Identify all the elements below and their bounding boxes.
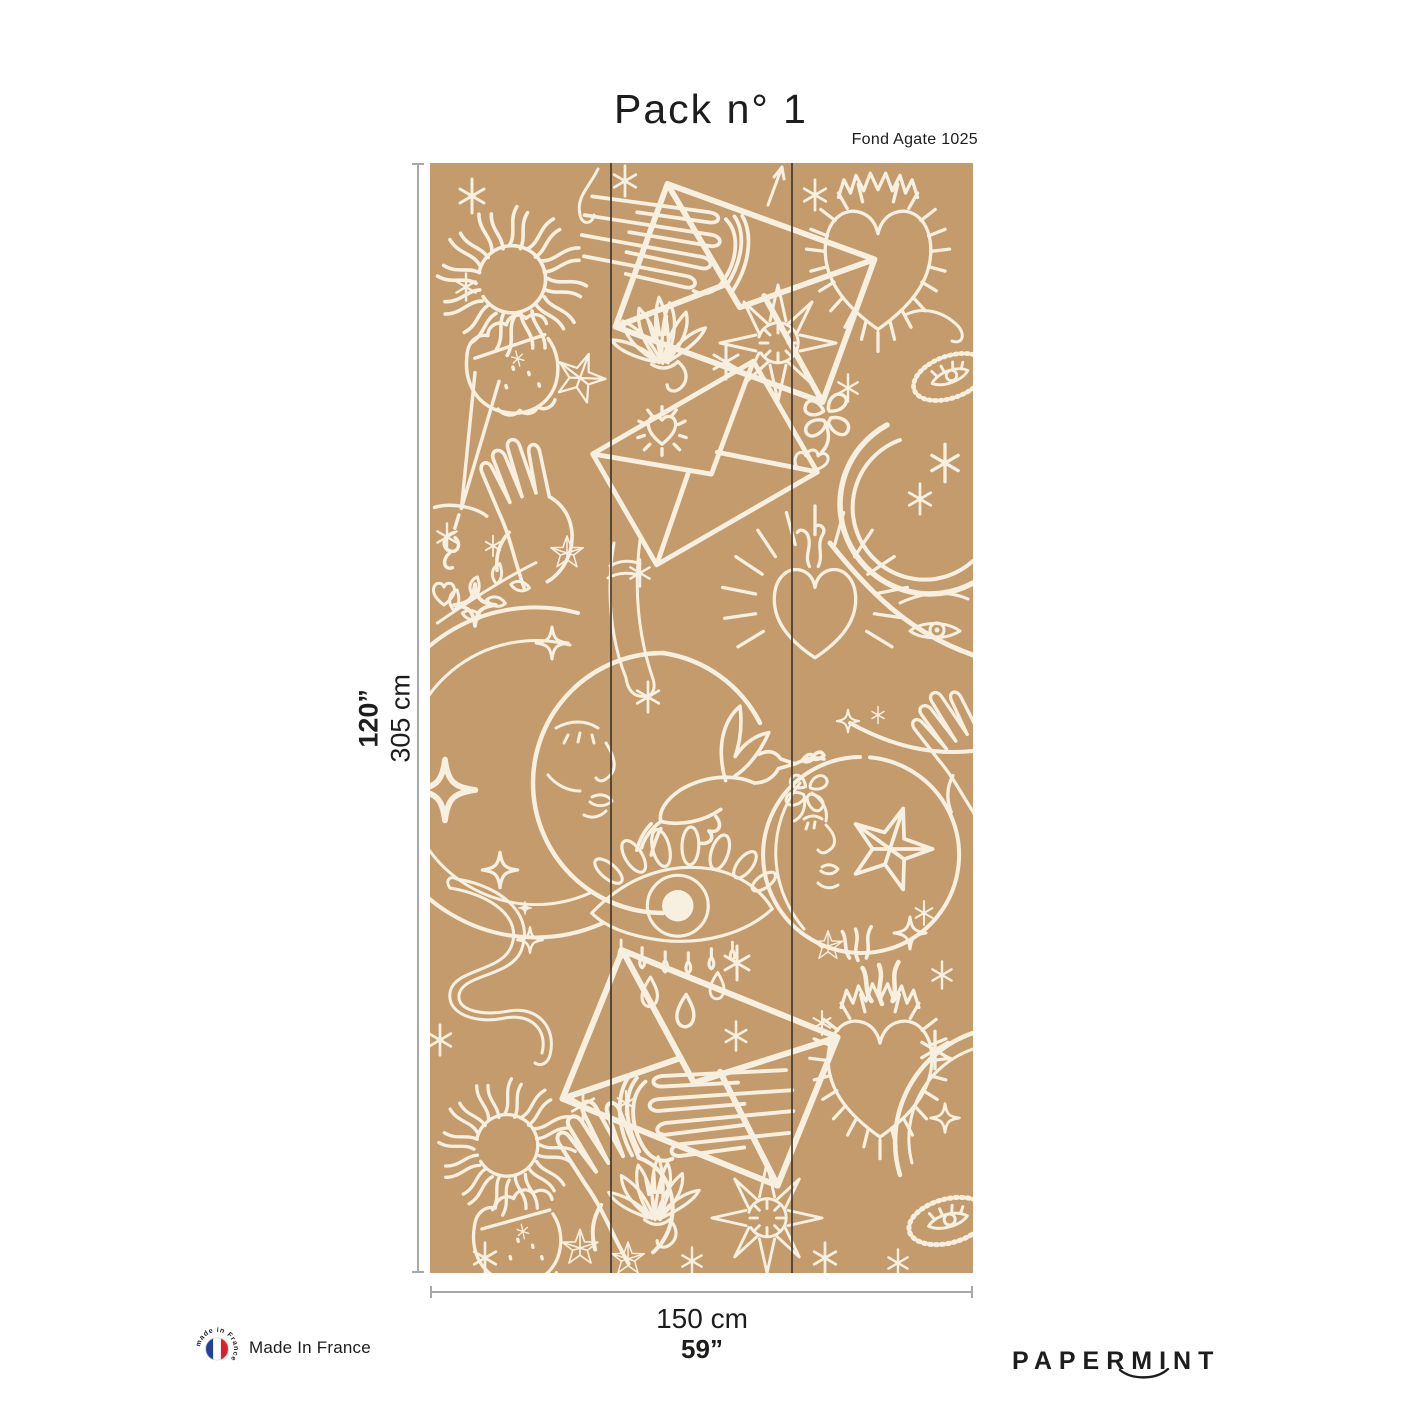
flaming-sacred-heart-motif <box>723 506 908 658</box>
eye-amulet-motif <box>904 1189 973 1252</box>
brand-logo-swash <box>1118 1368 1170 1382</box>
width-dimension-line <box>430 1291 973 1293</box>
height-inches-label: 120” <box>353 618 385 818</box>
variant-label: Fond Agate 1025 <box>852 131 978 149</box>
made-in-france-label: Made In France <box>249 1338 371 1358</box>
flame-sprig-motif <box>842 927 871 961</box>
open-hand-motif <box>895 677 973 831</box>
page-title: Pack n° 1 <box>0 86 1422 133</box>
sparkle-icon <box>460 179 484 213</box>
fringed-sacred-heart-motif <box>807 173 950 351</box>
brand-logo: PAPERMINT <box>1012 1347 1220 1376</box>
made-in-france-badge: made in France <box>193 1324 241 1372</box>
thick-crescent-moon-motif <box>840 425 973 594</box>
lotus-motif <box>609 1157 699 1247</box>
envelope-motif <box>593 361 818 565</box>
arm-bracelets-motif <box>608 540 654 696</box>
wallpaper-preview <box>430 163 973 1273</box>
width-cm-label: 150 cm <box>602 1303 802 1335</box>
height-cm-label: 305 cm <box>385 618 417 818</box>
arrow-motif <box>768 167 784 205</box>
four-leaf-clover-motif <box>805 394 849 452</box>
flat-hand-motif <box>613 1049 800 1168</box>
envelope-motif <box>615 184 874 402</box>
moon-arc-motif <box>909 1049 973 1163</box>
radiant-heart-seal-motif <box>638 407 686 455</box>
all-seeing-eye-motif <box>591 827 779 1027</box>
flaming-sun-motif <box>439 1079 575 1215</box>
star-motif <box>550 346 611 406</box>
snake-curve-motif <box>905 311 962 342</box>
product-dimension-sheet: Pack n° 1 Fond Agate 1025 120” 305 cm <box>0 0 1422 1422</box>
eye-amulet-motif <box>907 344 973 409</box>
width-labels: 150 cm 59” <box>602 1303 802 1365</box>
width-inches-label: 59” <box>602 1335 802 1365</box>
french-flag-icon <box>206 1338 229 1361</box>
sun-disc-motif <box>533 653 663 913</box>
wallpaper-art <box>430 163 973 1273</box>
flaming-sun-motif <box>438 207 587 356</box>
height-labels: 120” 305 cm <box>353 618 418 818</box>
